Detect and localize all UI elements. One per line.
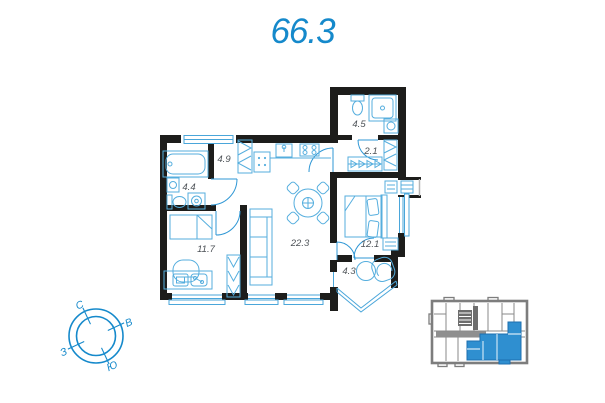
bathtub-icon <box>163 151 208 177</box>
closet-wardrobe-icon <box>227 255 240 297</box>
compass-rose: С В З Ю <box>58 298 134 374</box>
kitchen-sink-icon <box>276 144 292 157</box>
entrance-door-icon <box>184 136 233 144</box>
window-icon <box>284 292 323 305</box>
dresser-icon <box>383 238 398 250</box>
room-label-bathroom-top: 4.5 <box>352 119 366 130</box>
window-icon <box>169 292 225 305</box>
desk-icon <box>170 215 212 239</box>
room-label-bathroom-left: 4.4 <box>182 182 195 193</box>
room-label-hallway: 4.9 <box>217 154 231 165</box>
window-icon <box>245 292 278 305</box>
wardrobe-shelves-icon <box>384 140 397 170</box>
door-arc-bathroom-left <box>211 179 237 205</box>
keyplan <box>429 298 527 367</box>
toilet-icon <box>351 95 364 115</box>
room-label-bedroom-left: 11.7 <box>197 244 216 255</box>
floorplan-drawing: 4.5 2.1 4.9 4.4 11.7 22.3 12.1 4.3 С В З… <box>0 0 605 403</box>
fixtures <box>163 95 420 297</box>
bed-icon <box>345 195 387 238</box>
balcony-glazing-icon <box>337 281 397 312</box>
door-arc-bedroom-left <box>216 211 240 235</box>
compass-east-label: В <box>123 316 134 330</box>
wardrobe-icon <box>238 140 252 173</box>
room-label-balcony: 4.3 <box>342 266 356 277</box>
stove-icon <box>300 144 319 156</box>
compass-west-label: З <box>58 345 69 359</box>
floorplan-page: { "title": "66.3", "plan": { "rooms": [ … <box>0 0 605 403</box>
keyplan-corridor <box>436 332 486 338</box>
sofa-icon <box>250 209 272 285</box>
window-icon <box>397 194 409 236</box>
side-table-icon <box>164 271 212 289</box>
nightstand-icon <box>385 181 397 193</box>
room-label-living-kitchen: 22.3 <box>290 238 310 249</box>
sink-icon <box>167 178 179 192</box>
shoe-cabinet-icon <box>254 152 270 172</box>
room-label-closet: 2.1 <box>363 146 377 157</box>
dining-table-icon <box>286 181 330 225</box>
wardrobe-rail-icon <box>348 157 382 171</box>
room-label-bedroom-right: 12.1 <box>361 239 380 250</box>
ac-unit-icon <box>401 179 420 196</box>
shower-icon <box>369 95 396 121</box>
